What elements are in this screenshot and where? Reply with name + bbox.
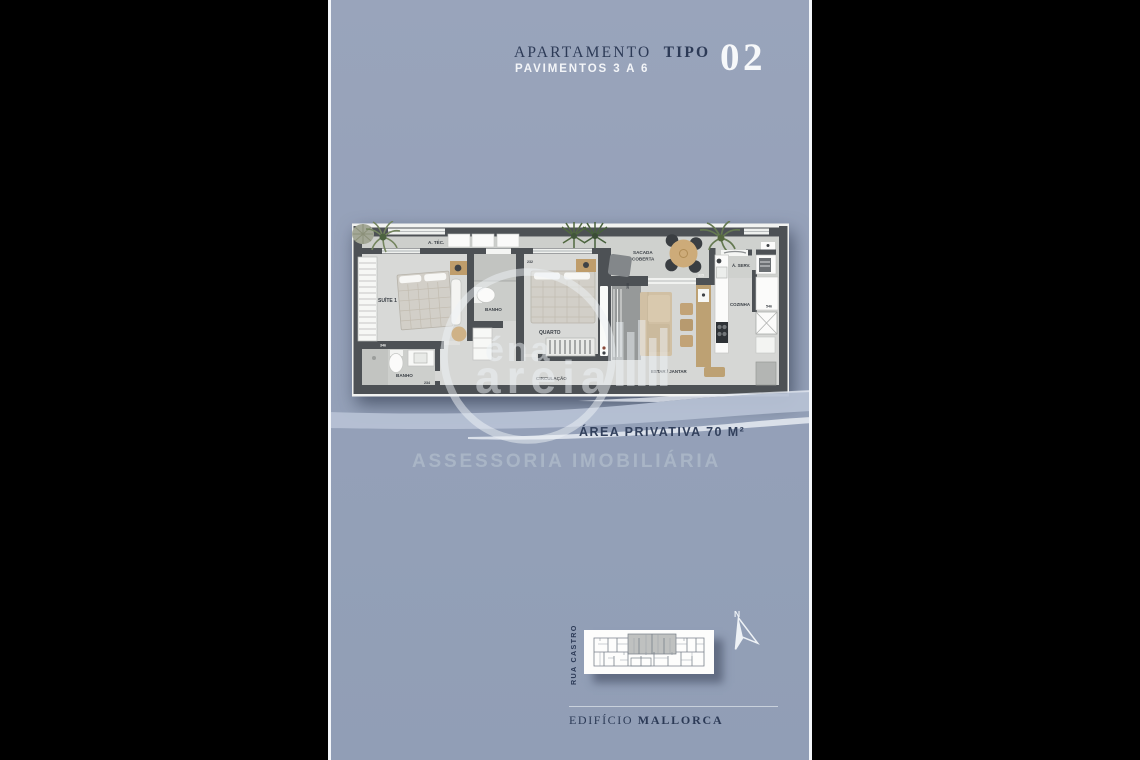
svg-text:A. TÉC.: A. TÉC. bbox=[428, 238, 444, 245]
svg-text:areia: areia bbox=[475, 351, 612, 403]
svg-text:SACADA: SACADA bbox=[633, 250, 653, 255]
svg-text:N: N bbox=[734, 609, 740, 619]
